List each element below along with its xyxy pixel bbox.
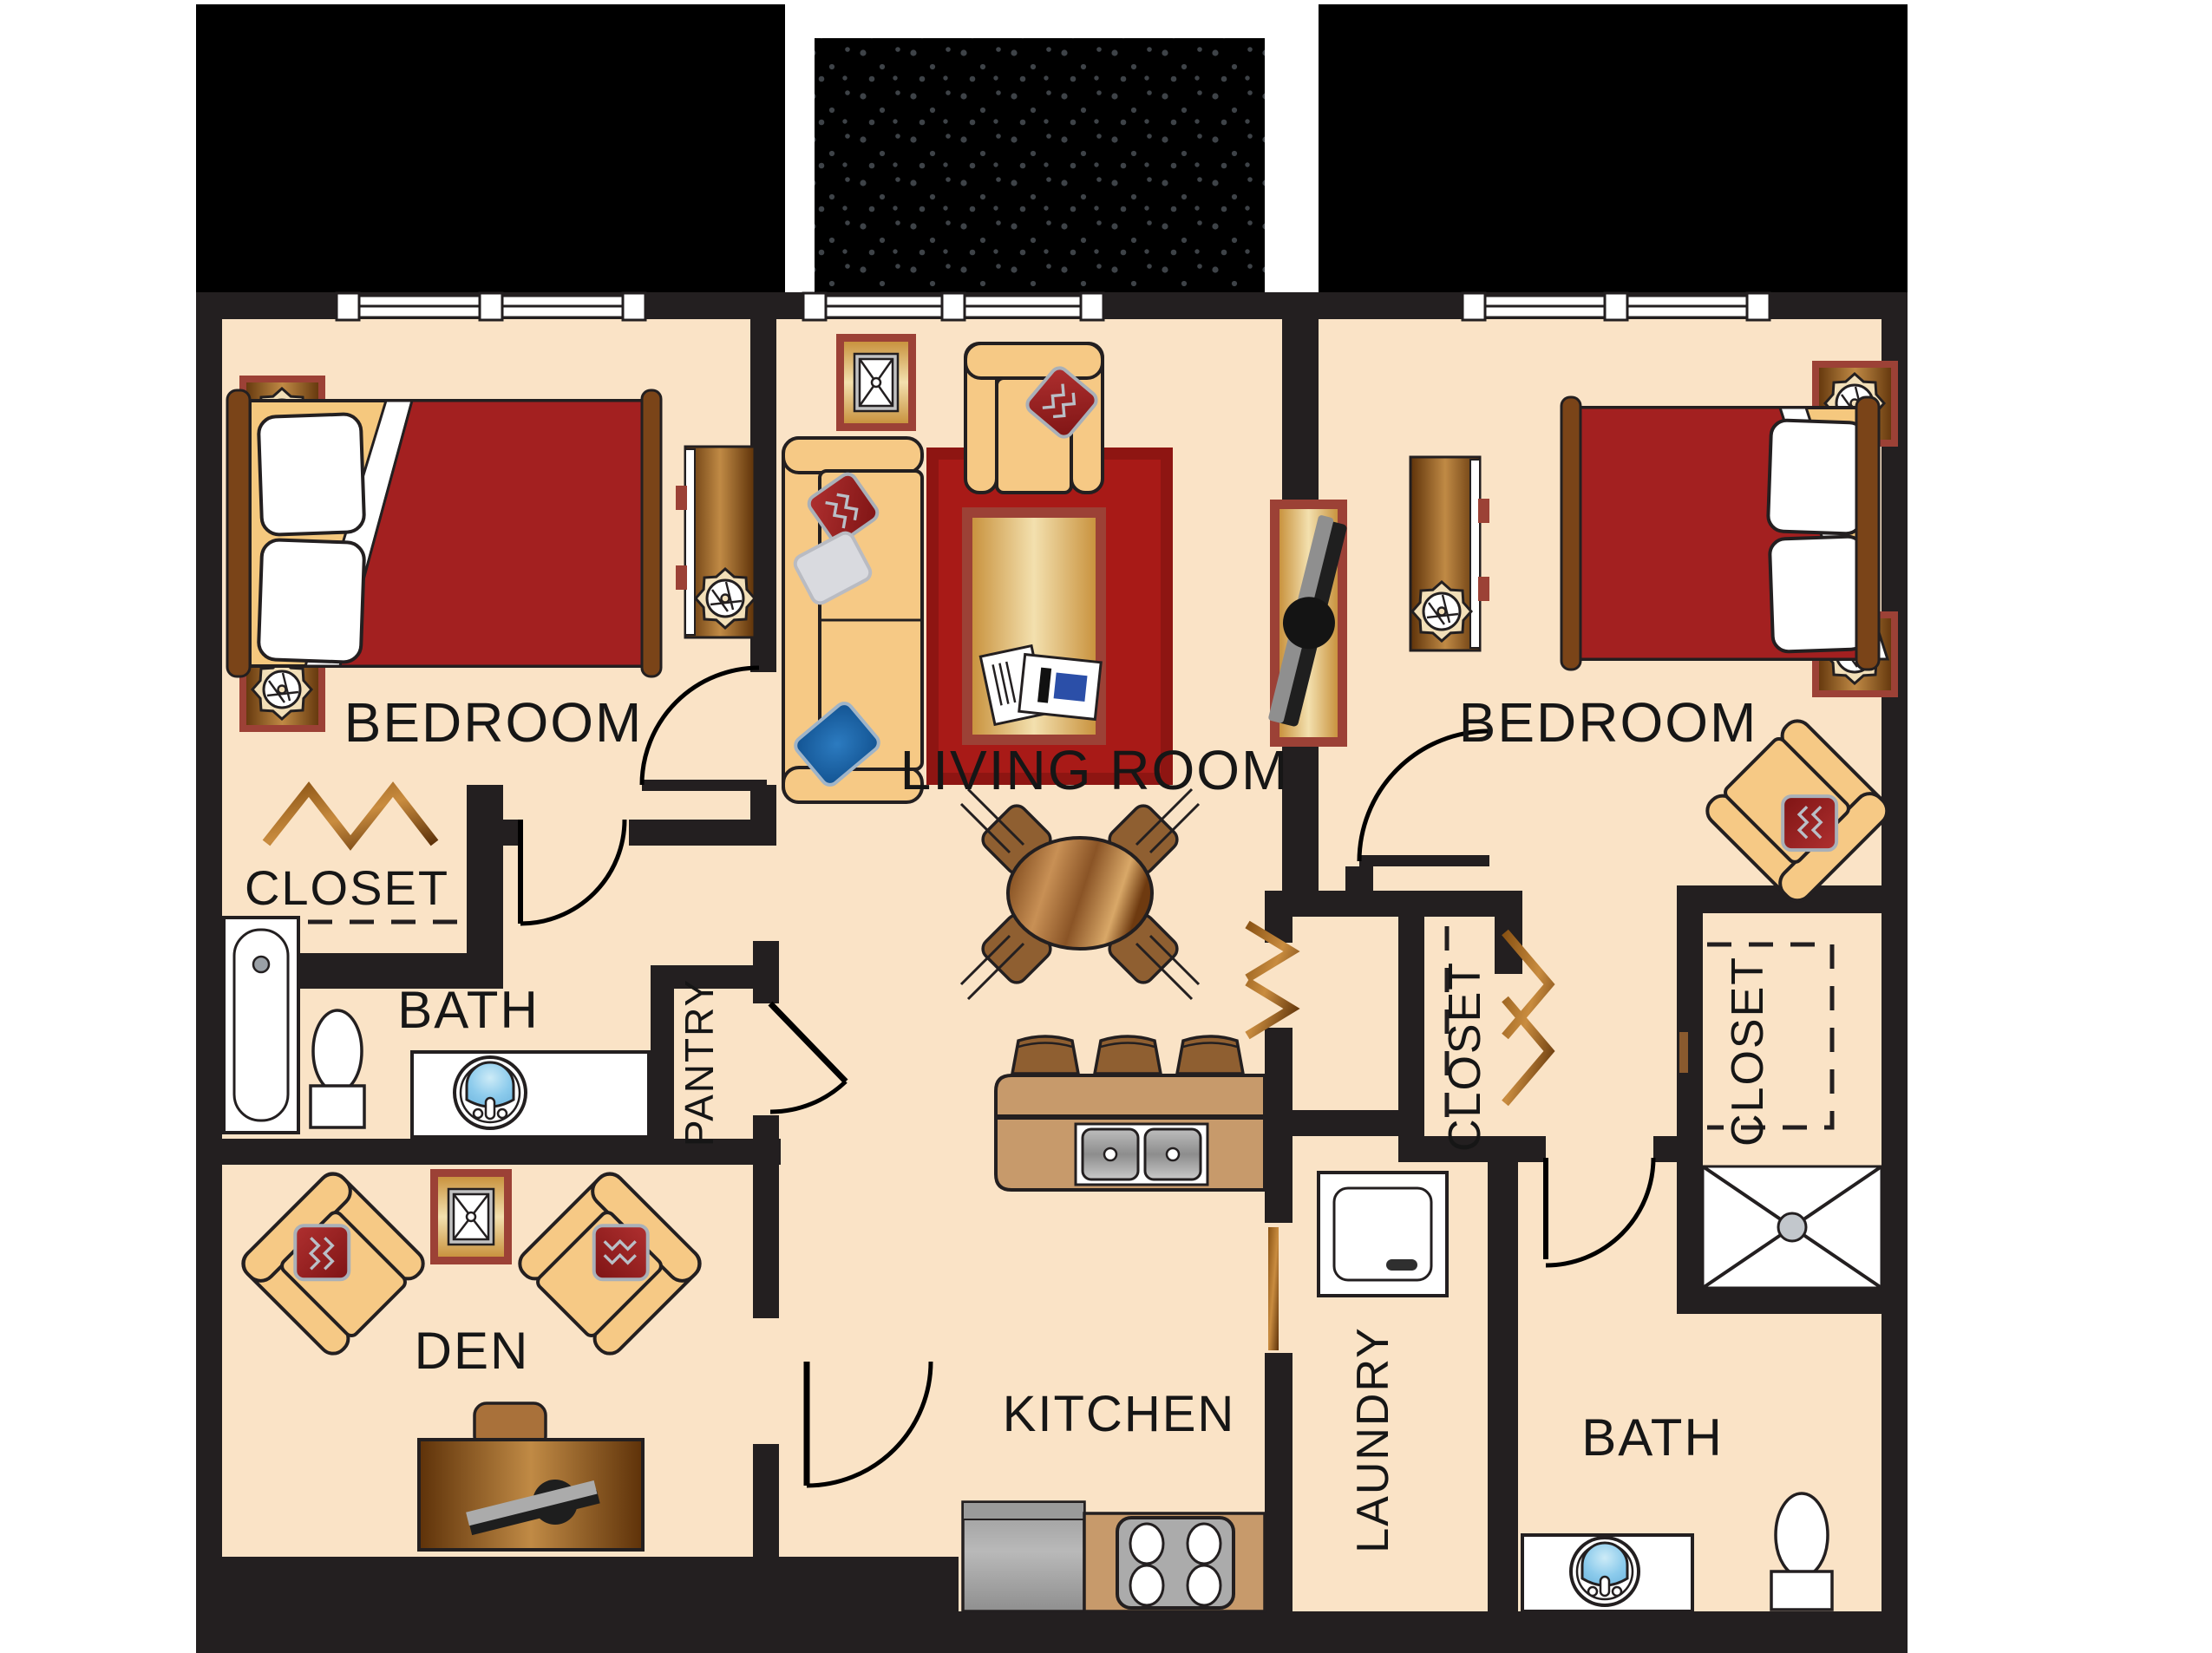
coffee-table: [962, 507, 1106, 745]
wall-pantry-right-stub: [753, 941, 779, 1003]
wall-closetA-bottom: [1293, 1110, 1424, 1136]
wall-shower-bottom: [1677, 1288, 1882, 1314]
floor-plan-drawing: BEDROOM LIVING ROOM BEDROOM CLOSET BATH …: [0, 0, 2212, 1653]
room-label-bath-left: BATH: [397, 981, 540, 1039]
room-label-pantry: PANTRY: [677, 978, 722, 1147]
wall-outer-bottom: [959, 1611, 1908, 1653]
wall-laundry-bath2: [1488, 1162, 1518, 1611]
laundry-door-leaf: [1268, 1227, 1279, 1350]
wall-kitchen-laundry-lower: [1265, 1353, 1293, 1611]
wall-bedroom2-door-jamb: [1345, 866, 1373, 891]
terrace-middle-texture: [815, 38, 1265, 319]
barstools: [1012, 1036, 1243, 1074]
wall-bottom-left-mass: [196, 1557, 959, 1653]
shower-icon: [1703, 1166, 1882, 1288]
wall-bath1-top-left: [467, 820, 520, 846]
wall-closetA-left-stub-bottom: [1265, 1028, 1293, 1075]
wall-outer-right: [1882, 292, 1908, 1630]
kitchen-island: [996, 1075, 1265, 1190]
room-label-bath-right: BATH: [1581, 1408, 1724, 1467]
closet-door-jamb: [1679, 1032, 1688, 1073]
window-bedroom-right: [1463, 293, 1770, 320]
wall-outer-left: [196, 292, 222, 1585]
bed-left: [227, 390, 661, 676]
room-label-laundry: LAUNDRY: [1348, 1326, 1398, 1553]
wall-closetA-closetB: [1398, 917, 1424, 1136]
window-living-room: [803, 293, 1103, 320]
toilet-icon: [311, 1010, 364, 1127]
vanity-sink: [1522, 1535, 1692, 1611]
wall-bedroom1-bottom: [629, 820, 776, 846]
bathtub-icon: [224, 918, 298, 1133]
room-label-closet-middle: CLOSET: [1440, 961, 1490, 1152]
room-label-closet-right: CLOSET: [1723, 956, 1773, 1147]
room-label-bedroom-left: BEDROOM: [344, 691, 644, 754]
wall-pantry-left: [651, 965, 674, 1139]
armchair-living: [965, 343, 1103, 493]
room-label-den: DEN: [415, 1322, 530, 1380]
dresser-left: [676, 447, 755, 637]
terrace-left: [196, 4, 785, 299]
terrace-right: [1319, 4, 1908, 299]
stove-counter: [1084, 1513, 1265, 1611]
vanity-sink: [412, 1052, 649, 1137]
terrace-blocks: [196, 4, 1908, 319]
tv-console: [1259, 500, 1360, 747]
room-label-kitchen: KITCHEN: [1003, 1386, 1236, 1442]
wall-closet-corridor-top: [1265, 891, 1522, 917]
refrigerator-icon: [963, 1502, 1084, 1611]
bed-right: [1561, 397, 1888, 670]
washer-icon: [1319, 1173, 1447, 1296]
wall-art-frame: [430, 1169, 512, 1264]
wall-kitchen-laundry-upper: [1265, 1075, 1293, 1223]
floor-plan-page: BEDROOM LIVING ROOM BEDROOM CLOSET BATH …: [0, 0, 2212, 1653]
room-label-closet-left: CLOSET: [245, 860, 449, 915]
room-label-living-room: LIVING ROOM: [900, 739, 1290, 801]
wall-closet2-left: [1677, 885, 1703, 1314]
dresser-right: [1410, 457, 1489, 650]
window-bedroom-left: [337, 293, 645, 320]
wall-hall-kitchen: [753, 1115, 779, 1318]
wall-art-frame: [836, 334, 916, 431]
toilet-icon: [1771, 1493, 1832, 1610]
windows: [337, 293, 1770, 320]
room-label-bedroom-right: BEDROOM: [1459, 691, 1758, 754]
wall-den-kitchen: [753, 1444, 779, 1557]
